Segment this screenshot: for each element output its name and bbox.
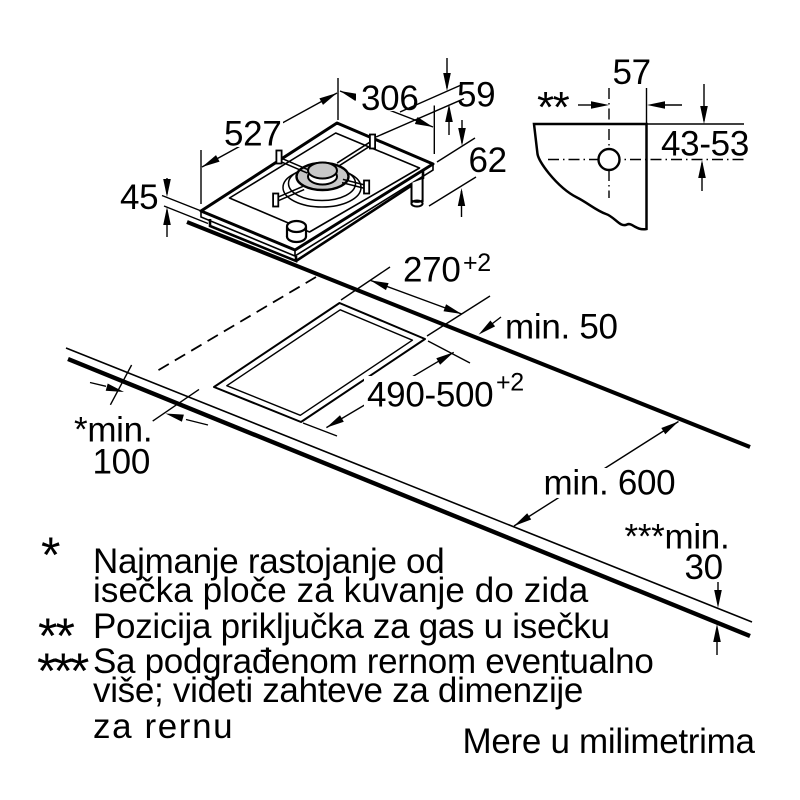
svg-text:43-53: 43-53: [661, 125, 749, 164]
svg-text:isečka ploče za kuvanje do zid: isečka ploče za kuvanje do zida: [93, 571, 589, 610]
svg-text:*: *: [41, 527, 60, 583]
svg-text:490-500: 490-500: [367, 376, 493, 415]
svg-text:Pozicija priključka za gas u i: Pozicija priključka za gas u isečku: [93, 607, 610, 646]
svg-text:više; videti zahteve za dimenz: više; videti zahteve za dimenzije: [93, 671, 583, 710]
svg-text:+2: +2: [463, 249, 491, 277]
svg-text:+2: +2: [496, 369, 524, 397]
svg-text:59: 59: [457, 76, 495, 115]
svg-text:527: 527: [224, 115, 282, 154]
svg-text:45: 45: [120, 178, 158, 217]
svg-text:min. 50: min. 50: [505, 308, 618, 347]
svg-text:100: 100: [93, 443, 151, 482]
svg-text:**: **: [537, 83, 570, 132]
svg-text:270: 270: [403, 251, 461, 290]
svg-text:30: 30: [685, 548, 723, 587]
svg-text:min. 600: min. 600: [544, 464, 676, 503]
svg-text:62: 62: [469, 141, 507, 180]
svg-text:Mere u milimetrima: Mere u milimetrima: [463, 722, 756, 761]
svg-text:57: 57: [613, 53, 651, 92]
svg-text:za rernu: za rernu: [93, 707, 234, 746]
svg-text:***: ***: [37, 643, 89, 699]
svg-text:306: 306: [361, 79, 419, 118]
